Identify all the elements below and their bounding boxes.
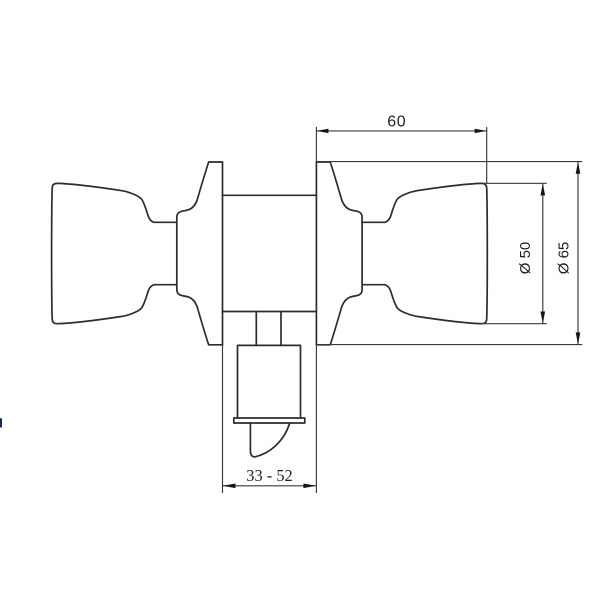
svg-text:Ø 65: Ø 65 [555, 242, 572, 275]
svg-text:33 - 52: 33 - 52 [246, 466, 292, 485]
svg-text:Ø 50: Ø 50 [517, 242, 534, 275]
svg-text:60: 60 [387, 114, 406, 131]
